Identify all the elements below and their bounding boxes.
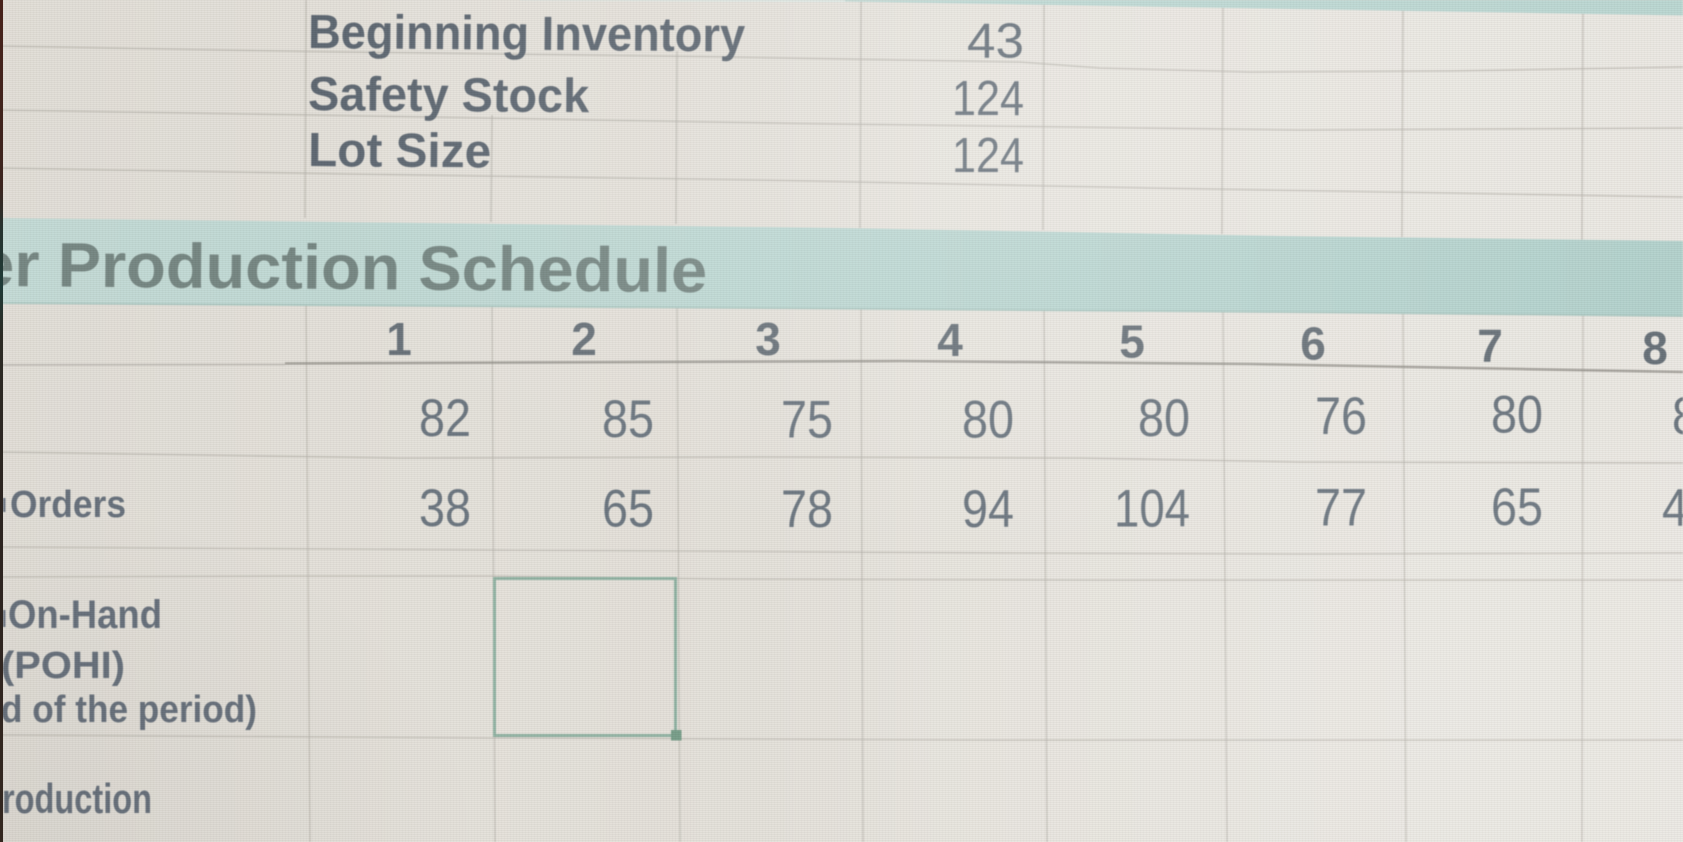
svg-text:38: 38 bbox=[419, 479, 471, 538]
svg-text:80: 80 bbox=[1138, 389, 1190, 448]
svg-text:roduction: roduction bbox=[2, 775, 152, 822]
svg-text:124: 124 bbox=[952, 129, 1024, 183]
svg-text:1: 1 bbox=[386, 313, 412, 365]
svg-text:77: 77 bbox=[1315, 479, 1367, 538]
svg-text:Safety Stock: Safety Stock bbox=[308, 68, 590, 123]
svg-text:65: 65 bbox=[602, 480, 654, 539]
svg-text:Beginning Inventory: Beginning Inventory bbox=[308, 6, 746, 62]
svg-text:d of the period): d of the period) bbox=[1, 689, 257, 731]
svg-text:85: 85 bbox=[602, 390, 654, 449]
svg-text:2: 2 bbox=[571, 313, 597, 365]
svg-text:65: 65 bbox=[1491, 478, 1543, 537]
svg-text:4: 4 bbox=[937, 314, 963, 366]
svg-text:94: 94 bbox=[962, 480, 1014, 539]
svg-text:8: 8 bbox=[1642, 322, 1668, 374]
svg-text:On-Hand: On-Hand bbox=[8, 593, 162, 637]
svg-text:6: 6 bbox=[1300, 318, 1326, 370]
svg-text:85: 85 bbox=[1672, 387, 1683, 446]
svg-text:Orders: Orders bbox=[10, 484, 126, 526]
svg-text:80: 80 bbox=[962, 391, 1014, 450]
svg-text:104: 104 bbox=[1114, 480, 1190, 539]
svg-text:45: 45 bbox=[1662, 479, 1683, 538]
svg-text:80: 80 bbox=[1491, 386, 1543, 445]
svg-text:124: 124 bbox=[952, 72, 1024, 126]
svg-text:75: 75 bbox=[781, 391, 833, 450]
svg-text:7: 7 bbox=[1477, 320, 1503, 372]
svg-text:76: 76 bbox=[1315, 387, 1367, 446]
svg-text:82: 82 bbox=[419, 389, 471, 448]
svg-text:(POHI): (POHI) bbox=[1, 645, 125, 687]
svg-text:43: 43 bbox=[967, 15, 1024, 69]
svg-text:5: 5 bbox=[1119, 316, 1145, 368]
svg-text:Lot Size: Lot Size bbox=[308, 124, 491, 178]
svg-text:3: 3 bbox=[755, 313, 781, 365]
svg-text:er Production Schedule: er Production Schedule bbox=[0, 230, 707, 306]
svg-text:78: 78 bbox=[781, 480, 833, 539]
